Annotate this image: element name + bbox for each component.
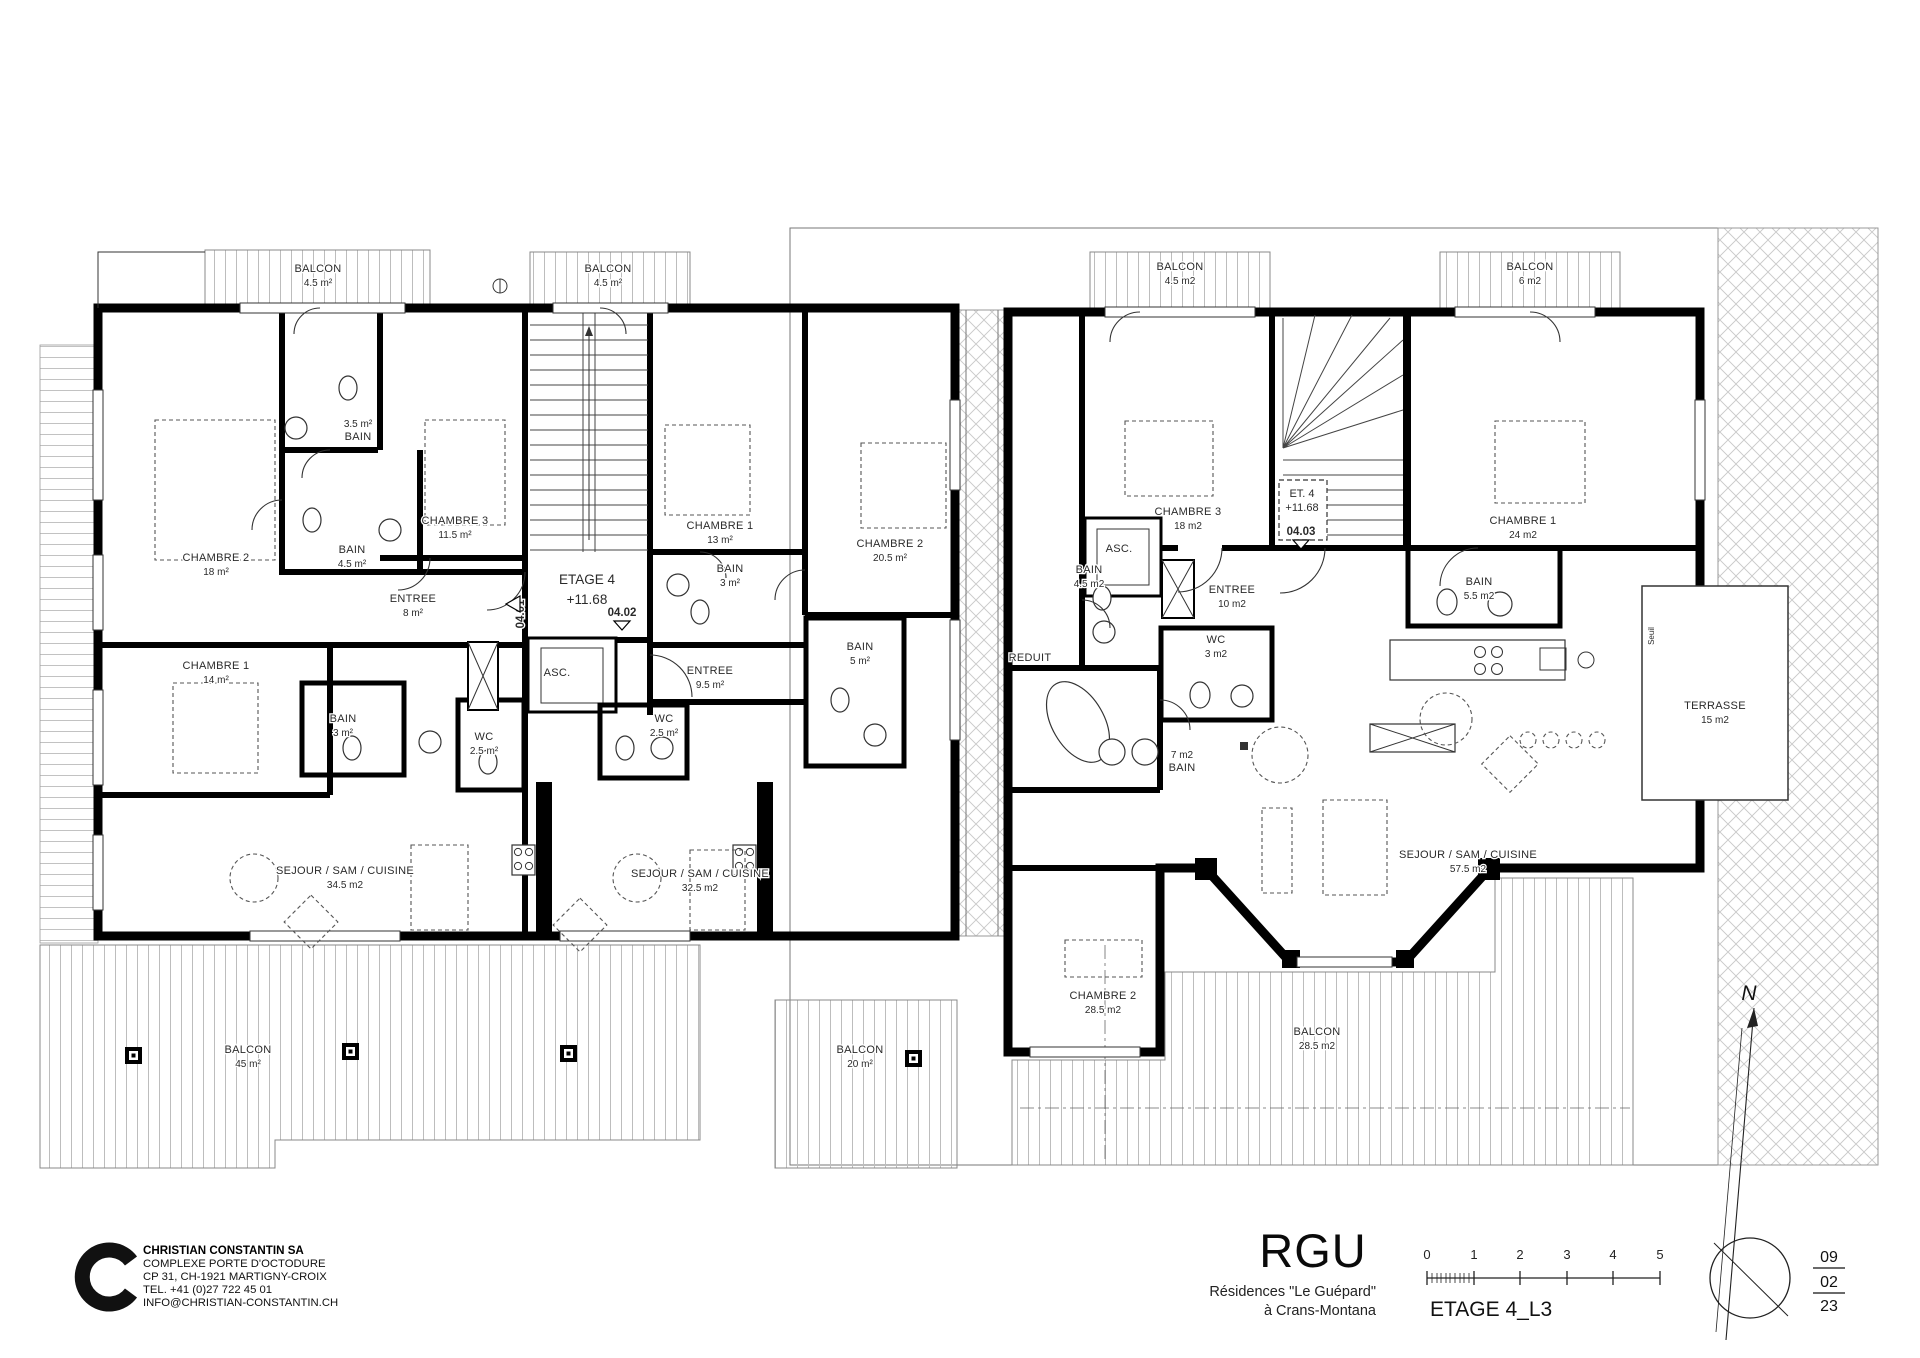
room-label-7: CHAMBRE 114 m² <box>183 660 250 686</box>
room-label-2: 3.5 m²BAIN <box>344 419 373 443</box>
date-year: 23 <box>1820 1298 1838 1315</box>
wall <box>282 308 525 572</box>
bain-room <box>302 683 404 775</box>
wall <box>650 308 955 702</box>
room-label-25: ENTREE10 m2 <box>1209 584 1255 610</box>
room-label-28: ASC. <box>1106 543 1133 555</box>
project-name: Résidences "Le Guépard" <box>1209 1284 1376 1300</box>
room-name: WC <box>655 713 674 725</box>
wc-room <box>458 700 524 790</box>
date-day: 09 <box>1820 1249 1838 1266</box>
room-name: CHAMBRE 2 <box>183 552 250 564</box>
room-name: BALCON <box>294 263 341 275</box>
room-name: BALCON <box>224 1044 271 1056</box>
room-label-30: BAIN5.5 m2 <box>1464 576 1495 602</box>
project-logo: RGU <box>1259 1224 1366 1277</box>
drawing-title: ETAGE 4_L3 <box>1430 1298 1552 1321</box>
room-name: CHAMBRE 1 <box>183 660 250 672</box>
room-area: 4.5 m² <box>304 278 333 289</box>
room-area: 13 m² <box>707 535 733 546</box>
room-name: CHAMBRE 2 <box>1070 990 1137 1002</box>
room-name: BALCON <box>1506 261 1553 273</box>
company-address-1: COMPLEXE PORTE D'OCTODURE <box>143 1258 326 1270</box>
room-label-12: ASC. <box>544 667 571 679</box>
right-building <box>1008 252 1788 1165</box>
door-tag-0403: 04.03 <box>1287 526 1316 538</box>
room-label-19: SEJOUR / SAM / CUISINE32.5 m2 <box>631 868 769 894</box>
room-label-16: ENTREE9.5 m² <box>687 665 733 691</box>
room-name: TERRASSE <box>1684 700 1746 712</box>
room-label-18: BAIN5 m² <box>847 641 874 667</box>
room-label-15: CHAMBRE 220.5 m² <box>857 538 924 564</box>
room-name: CHAMBRE 1 <box>1490 515 1557 527</box>
room-area: 2.5 m² <box>470 746 499 757</box>
room-area: 34.5 m2 <box>327 880 364 891</box>
room-name: BAIN <box>1076 564 1103 576</box>
room-area: 45 m² <box>235 1059 261 1070</box>
company-phone: TEL. +41 (0)27 722 45 01 <box>143 1284 272 1296</box>
room-area: 20.5 m² <box>873 553 908 564</box>
door-tag-0402: 04.02 <box>608 607 637 619</box>
seuil-label: Seuil <box>1647 627 1656 645</box>
room-name: BAIN <box>1169 762 1196 774</box>
room-area: 32.5 m2 <box>682 883 719 894</box>
scale-bar: 0 1 2 3 4 5 <box>1423 1247 1663 1285</box>
room-area: 4.5 m2 <box>1074 579 1105 590</box>
wc-room <box>600 705 687 778</box>
room-name: BAIN <box>717 563 744 575</box>
room-name: BAIN <box>1466 576 1493 588</box>
room-area: 24 m2 <box>1509 530 1537 541</box>
room-label-27: REDUIT <box>1009 652 1052 664</box>
room-name: CHAMBRE 2 <box>857 538 924 550</box>
level-tag-label: ET. 4 <box>1289 488 1314 500</box>
room-label-8: BAIN3 m² <box>330 713 357 739</box>
room-area: 4.5 m2 <box>1165 276 1196 287</box>
level-tag-elevation: +11.68 <box>1285 502 1318 514</box>
room-area: 5.5 m2 <box>1464 591 1495 602</box>
stove <box>512 845 535 875</box>
scale-tick-1: 1 <box>1470 1247 1477 1262</box>
room-area: 8 m² <box>403 608 424 619</box>
room-area: 10 m2 <box>1218 599 1246 610</box>
left-building <box>40 250 960 1168</box>
room-name: CHAMBRE 3 <box>1155 506 1222 518</box>
room-name: CHAMBRE 1 <box>687 520 754 532</box>
room-name: CHAMBRE 3 <box>422 515 489 527</box>
room-name: SEJOUR / SAM / CUISINE <box>631 868 769 880</box>
room-name: WC <box>475 731 494 743</box>
room-label-31: 7 m2BAIN <box>1169 750 1196 774</box>
kitchen <box>1240 640 1605 752</box>
room-area: 6 m2 <box>1519 276 1542 287</box>
room-area: 3 m² <box>720 578 741 589</box>
room-name: BALCON <box>584 263 631 275</box>
room-area: 28.5 m2 <box>1085 1005 1122 1016</box>
room-name: BALCON <box>1293 1026 1340 1038</box>
kitchen-wall <box>536 782 552 934</box>
company-name: CHRISTIAN CONSTANTIN SA <box>143 1244 304 1257</box>
room-label-9: WC2.5 m² <box>470 731 499 757</box>
room-area: 9.5 m² <box>696 680 725 691</box>
room-name: ENTREE <box>390 593 436 605</box>
room-label-4: CHAMBRE 218 m² <box>183 552 250 578</box>
room-area: 3.5 m² <box>344 419 373 430</box>
room-label-23: CHAMBRE 318 m2 <box>1155 506 1222 532</box>
room-label-26: WC3 m2 <box>1205 634 1228 660</box>
level-tag-label: ETAGE 4 <box>559 572 616 587</box>
date-month: 02 <box>1820 1274 1838 1291</box>
balcony-bottom-mid <box>775 1000 957 1168</box>
constantin-logo-icon <box>82 1250 131 1304</box>
door-tag-arrow <box>614 621 630 630</box>
room-name: SEJOUR / SAM / CUISINE <box>1399 849 1537 861</box>
level-tag-elevation: +11.68 <box>567 592 608 607</box>
room-name: ENTREE <box>687 665 733 677</box>
room-area: 18 m2 <box>1174 521 1202 532</box>
room-label-34: CHAMBRE 228.5 m2 <box>1070 990 1137 1016</box>
kitchen-wall <box>757 782 773 934</box>
room-label-29: CHAMBRE 124 m2 <box>1490 515 1557 541</box>
room-area: 3 m2 <box>1205 649 1228 660</box>
floor-plan-canvas: ETAGE 4 +11.68 ET. 4 +11.68 04.01 04.02 … <box>0 0 1920 1358</box>
room-area: 14 m² <box>203 675 229 686</box>
room-area: 18 m² <box>203 567 229 578</box>
room-area: 4.5 m² <box>338 559 367 570</box>
room-area: 15 m2 <box>1701 715 1729 726</box>
scale-tick-2: 2 <box>1516 1247 1523 1262</box>
north-label: N <box>1741 982 1757 1005</box>
room-name: SEJOUR / SAM / CUISINE <box>276 865 414 877</box>
room-label-13: CHAMBRE 113 m² <box>687 520 754 546</box>
room-name: BAIN <box>847 641 874 653</box>
room-name: BALCON <box>1156 261 1203 273</box>
room-label-3: CHAMBRE 311.5 m² <box>422 515 489 541</box>
room-area: 5 m² <box>850 656 871 667</box>
roof-step <box>98 252 205 308</box>
scale-tick-0: 0 <box>1423 1247 1430 1262</box>
room-name: REDUIT <box>1009 652 1052 664</box>
building-joint-strip <box>958 310 1006 936</box>
room-name: BAIN <box>330 713 357 725</box>
scale-tick-5: 5 <box>1656 1247 1663 1262</box>
room-area: 7 m2 <box>1171 750 1194 761</box>
room-name: BAIN <box>345 431 372 443</box>
scale-tick-3: 3 <box>1563 1247 1570 1262</box>
room-area: 57.5 m2 <box>1450 864 1487 875</box>
room-label-6: ENTREE8 m² <box>390 593 436 619</box>
room-area: 11.5 m² <box>438 530 472 541</box>
room-area: 3 m² <box>333 728 354 739</box>
room-area: 20 m² <box>847 1059 873 1070</box>
room-name: BAIN <box>339 544 366 556</box>
room-name: ASC. <box>1106 543 1133 555</box>
date-block: 09 02 23 <box>1813 1249 1845 1315</box>
room-area: 28.5 m2 <box>1299 1041 1336 1052</box>
project-location: à Crans-Montana <box>1264 1303 1377 1319</box>
room-area: 4.5 m² <box>594 278 623 289</box>
room-name: ASC. <box>544 667 571 679</box>
room-label-5: BAIN4.5 m² <box>338 544 367 570</box>
room-area: 2.5 m² <box>650 728 679 739</box>
company-address-2: CP 31, CH-1921 MARTIGNY-CROIX <box>143 1271 327 1283</box>
scale-tick-4: 4 <box>1609 1247 1616 1262</box>
room-name: WC <box>1207 634 1226 646</box>
company-email: INFO@CHRISTIAN-CONSTANTIN.CH <box>143 1297 338 1309</box>
terrace-area <box>1642 586 1788 800</box>
room-label-14: BAIN3 m² <box>717 563 744 589</box>
room-label-10: SEJOUR / SAM / CUISINE34.5 m2 <box>276 865 414 891</box>
room-name: BALCON <box>836 1044 883 1056</box>
door-tag-arrow <box>506 596 520 612</box>
room-name: ENTREE <box>1209 584 1255 596</box>
room-label-17: WC2.5 m² <box>650 713 679 739</box>
side-deck <box>40 345 98 943</box>
